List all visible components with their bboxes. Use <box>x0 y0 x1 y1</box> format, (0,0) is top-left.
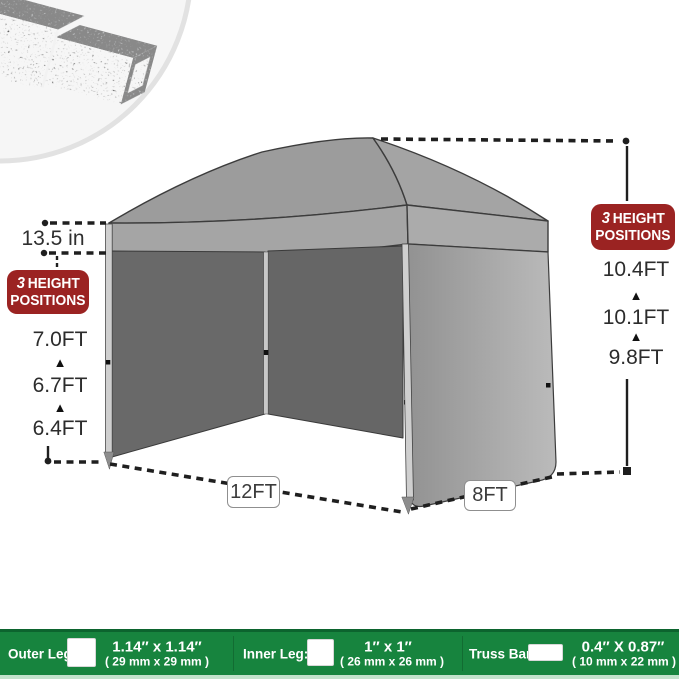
badge-line-2: POSITIONS <box>595 228 670 245</box>
square-tube-cross-section-icon <box>67 638 96 667</box>
badge-line-1: 3HEIGHT <box>601 210 664 228</box>
inner-leg-size: 1″ x 1″ ( 26 mm x 26 mm ) <box>340 639 436 668</box>
badge-line-1: 3HEIGHT <box>16 275 79 293</box>
spec-divider <box>233 636 234 671</box>
wall-attachment-dot <box>546 383 551 388</box>
left-height-low: 6.4FT <box>14 418 106 439</box>
left-height-mid: 6.7FT <box>14 375 106 396</box>
inner-leg-label: Inner Leg: <box>243 646 308 661</box>
back-corner-pole <box>264 252 269 414</box>
width-dimension-label: 12FT <box>227 476 280 508</box>
up-arrow-icon: ▲ <box>590 330 679 343</box>
spec-bar: Outer Leg: 1.14″ x 1.14″ ( 29 mm x 29 mm… <box>0 629 679 675</box>
canopy-dimension-diagram: 13.5 in 3HEIGHT POSITIONS 7.0FT ▲ 6.7FT … <box>0 0 679 679</box>
square-tube-cross-section-icon <box>307 639 334 666</box>
left-side-wall-interior <box>112 251 265 457</box>
front-left-foot <box>104 452 114 469</box>
height-positions-badge-left: 3HEIGHT POSITIONS <box>7 270 89 314</box>
canopy-tent <box>104 138 556 514</box>
height-positions-badge-right: 3HEIGHT POSITIONS <box>591 204 675 250</box>
front-left-leg <box>106 224 113 456</box>
truss-bar-size-in: 0.4″ X 0.87″ <box>572 639 674 656</box>
outer-leg-size-in: 1.14″ x 1.14″ <box>102 639 212 656</box>
up-arrow-icon: ▲ <box>14 356 106 369</box>
steel-tube-photo <box>0 0 191 161</box>
badge-number: 3 <box>601 210 609 227</box>
depth-dimension-label: 8FT <box>464 480 516 511</box>
back-wall-interior <box>268 246 403 438</box>
inner-leg-size-mm: ( 26 mm x 26 mm ) <box>340 655 436 668</box>
outer-leg-size: 1.14″ x 1.14″ ( 29 mm x 29 mm ) <box>102 639 212 668</box>
left-height-high: 7.0FT <box>14 329 106 350</box>
front-right-foot <box>402 497 414 514</box>
truss-bar-size-mm: ( 10 mm x 22 mm ) <box>572 655 674 668</box>
inner-leg-size-in: 1″ x 1″ <box>340 639 436 656</box>
badge-number: 3 <box>16 275 24 292</box>
right-side-wall <box>408 244 556 507</box>
truss-bar-size: 0.4″ X 0.87″ ( 10 mm x 22 mm ) <box>572 639 674 668</box>
spec-bar-bottom-strip <box>0 675 679 679</box>
badge-line-2: POSITIONS <box>10 293 85 310</box>
valance-height-label: 13.5 in <box>12 227 94 251</box>
outer-leg-size-mm: ( 29 mm x 29 mm ) <box>102 655 212 668</box>
right-height-low: 9.8FT <box>590 347 679 368</box>
rect-tube-cross-section-icon <box>528 644 563 661</box>
leg-attachment-dot <box>106 360 111 365</box>
up-arrow-icon: ▲ <box>590 289 679 302</box>
badge-word: HEIGHT <box>27 275 79 292</box>
badge-word: HEIGHT <box>612 210 664 227</box>
truss-bar-label: Truss Bar: <box>469 646 536 661</box>
right-height-high: 10.4FT <box>590 259 679 280</box>
spec-divider <box>462 636 463 671</box>
pole-attachment-dot <box>264 350 269 355</box>
right-height-mid: 10.1FT <box>590 307 679 328</box>
up-arrow-icon: ▲ <box>14 401 106 414</box>
